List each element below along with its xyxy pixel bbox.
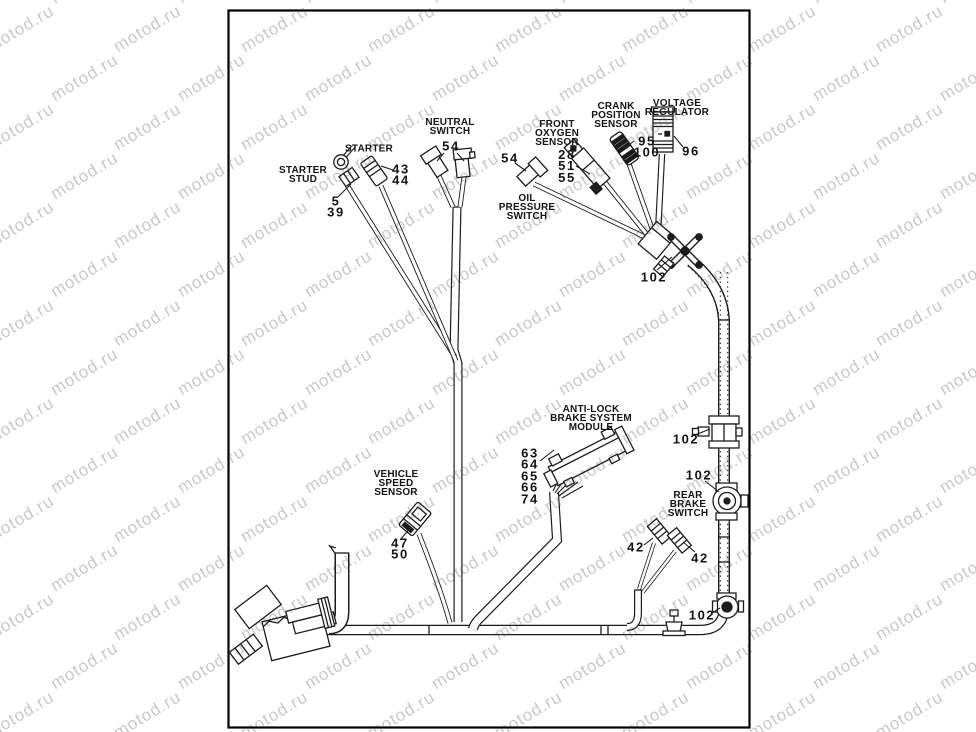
- rear-brake-switch-label: REAR BRAKE SWITCH: [668, 491, 709, 519]
- neutral-switch-ref: 54: [442, 140, 460, 151]
- neutral-switch-label: NEUTRAL SWITCH: [425, 118, 474, 136]
- conduit-ref-lower: 102: [686, 469, 713, 480]
- starter-ref: 43 44: [392, 164, 410, 187]
- vss-label: VEHICLE SPEED SENSOR: [374, 470, 419, 498]
- vss-ref: 47 50: [391, 538, 409, 561]
- abs-module-ref: 63 64 65 66 74: [521, 447, 539, 504]
- conduit-ref-top: 102: [641, 271, 668, 282]
- conduit-ref-bottom: 102: [689, 609, 716, 620]
- starter-stud-label: STARTER STUD: [279, 166, 327, 184]
- rear-brake-ref-right: 42: [691, 552, 709, 563]
- oxygen-sensor-label: FRONT OXYGEN SENSOR: [535, 120, 579, 148]
- voltage-regulator-ref: 96: [682, 145, 700, 156]
- oil-pressure-label: OIL PRESSURE SWITCH: [499, 194, 556, 222]
- abs-module-label: ANTI-LOCK BRAKE SYSTEM MODULE: [550, 405, 632, 433]
- crank-sensor-label: CRANK POSITION SENSOR: [591, 102, 640, 130]
- starter-stud-ref: 5 39: [327, 196, 345, 219]
- oil-pressure-ref: 54: [501, 152, 519, 163]
- voltage-regulator-label: VOLTAGE REGULATOR: [645, 99, 709, 117]
- oxygen-sensor-ref: 28 51 55: [558, 149, 576, 183]
- starter-label: STARTER: [345, 144, 393, 153]
- wiring-diagram: STARTER STUD 5 39 STARTER 43 44 NEUTRAL …: [0, 0, 976, 732]
- crank-sensor-ref: 95 100: [634, 136, 661, 159]
- label-layer: STARTER STUD 5 39 STARTER 43 44 NEUTRAL …: [0, 0, 976, 732]
- conduit-ref-mid: 102: [673, 433, 700, 444]
- rear-brake-ref-left: 42: [627, 541, 645, 552]
